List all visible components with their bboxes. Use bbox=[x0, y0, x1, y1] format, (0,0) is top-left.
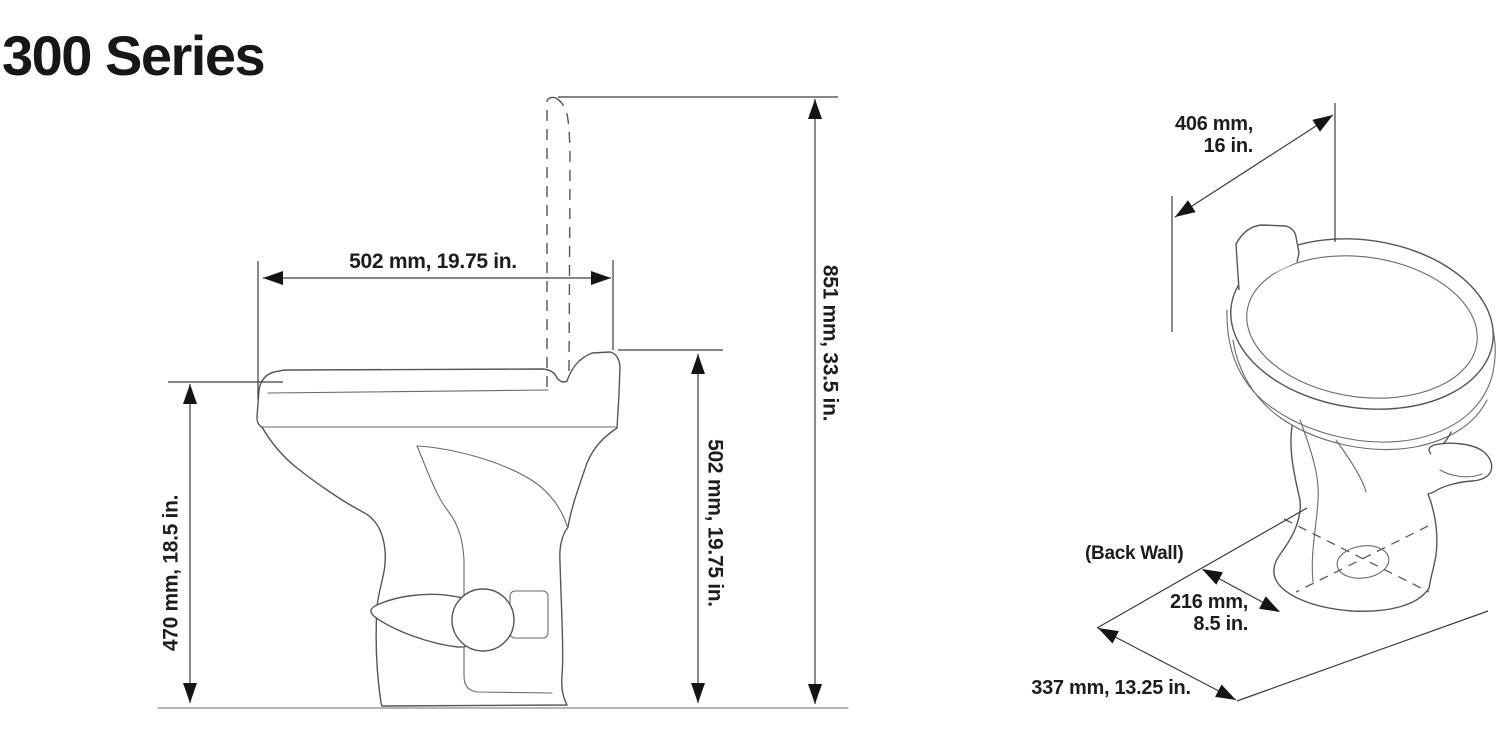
outlet-offset-line2: 8.5 in. bbox=[1193, 613, 1248, 635]
bowl-height-dimension-label: 470 mm, 18.5 in. bbox=[159, 495, 182, 651]
total-height-dimension-label: 851 mm, 33.5 in. bbox=[818, 265, 841, 421]
floor-centerline-b bbox=[1296, 526, 1428, 592]
bowl-underside-curve bbox=[417, 446, 567, 526]
seat-width-dimension-label: 406 mm, 16 in. bbox=[1093, 113, 1253, 157]
page-title: 300 Series bbox=[2, 28, 264, 84]
body-right-edge-lower bbox=[1428, 494, 1437, 588]
back-wall-label: (Back Wall) bbox=[1085, 544, 1183, 565]
pedal-backplate bbox=[510, 591, 548, 638]
seat-underline bbox=[268, 390, 548, 393]
seat-width-line2: 16 in. bbox=[1204, 135, 1253, 157]
technical-drawing bbox=[0, 0, 1500, 750]
raised-lid-dashed bbox=[547, 97, 570, 387]
seat-height-dimension-label: 502 mm, 19.75 in. bbox=[703, 439, 726, 607]
dim-width-top bbox=[258, 260, 613, 399]
depth-dimension-label: 337 mm, 13.25 in. bbox=[1031, 677, 1190, 699]
seat-width-line1: 406 mm, bbox=[1175, 113, 1253, 135]
outlet-offset-line1: 216 mm, bbox=[1170, 591, 1248, 613]
side-view-toilet-drawing bbox=[158, 97, 848, 708]
front-floor-line bbox=[1237, 611, 1488, 701]
outlet-offset-dimension-label: 216 mm, 8.5 in. bbox=[1088, 591, 1248, 635]
body-base bbox=[1275, 578, 1429, 611]
body-left-edge bbox=[1274, 426, 1300, 578]
toilet-side-outline bbox=[257, 352, 620, 706]
side-flush-pedal bbox=[1428, 443, 1492, 494]
flush-pedal-hub bbox=[452, 589, 514, 651]
body-contour-front bbox=[1300, 420, 1318, 582]
dim-bowl-height bbox=[168, 382, 283, 703]
trapway-curve bbox=[417, 446, 552, 693]
diagram-canvas: 300 Series 502 mm, 19.75 in. 851 mm, 33.… bbox=[0, 0, 1500, 750]
floor-centerline-a bbox=[1284, 519, 1429, 592]
width-dimension-label: 502 mm, 19.75 in. bbox=[349, 250, 517, 273]
